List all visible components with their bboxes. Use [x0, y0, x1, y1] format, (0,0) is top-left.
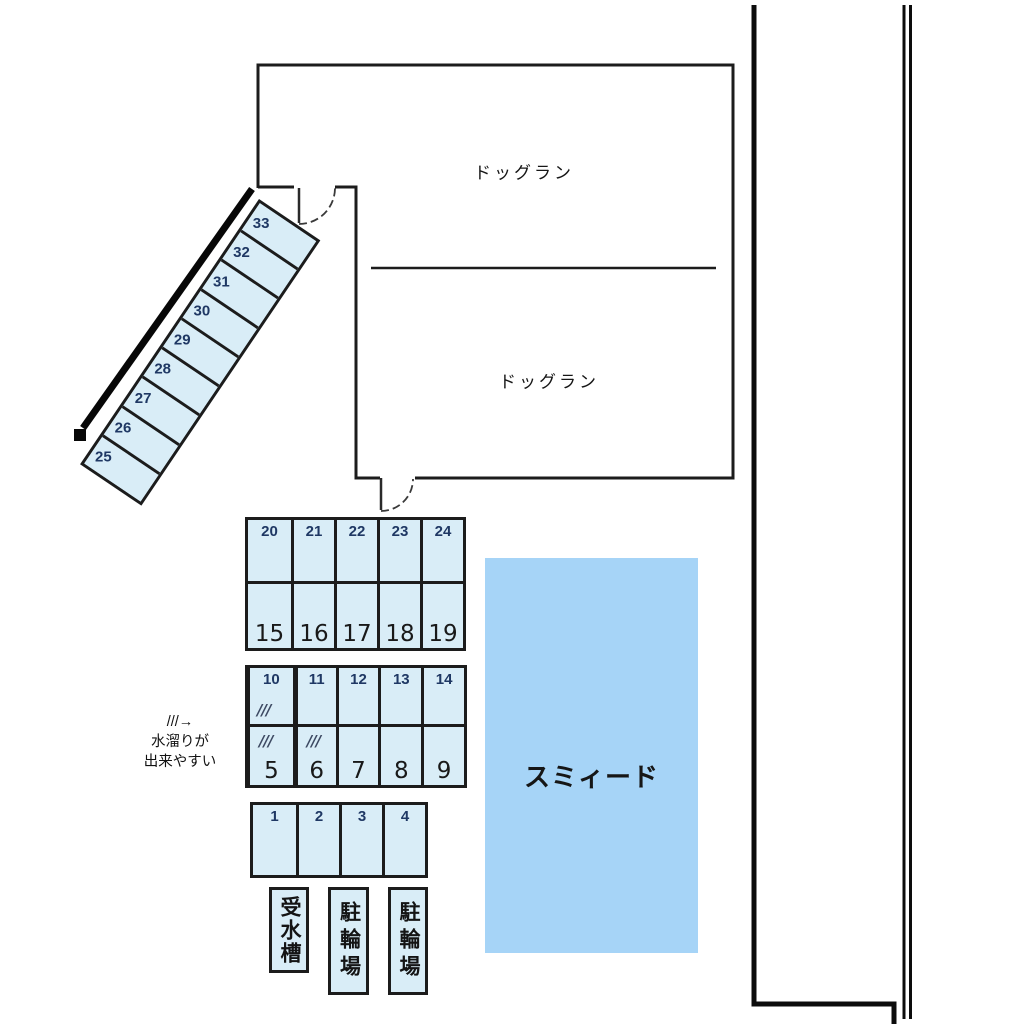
space-number: 20 — [248, 520, 291, 540]
parking-space-21: 21 — [291, 520, 334, 584]
dog-run-lower-label: ドッグラン — [499, 368, 599, 393]
space-number: 29 — [174, 332, 191, 349]
space-number: 7 — [339, 760, 379, 783]
space-number: 10 — [250, 668, 293, 688]
space-number: 30 — [194, 303, 211, 320]
space-number: 9 — [424, 760, 464, 783]
parking-space-10: 10 /// — [250, 668, 293, 727]
space-number: 19 — [423, 623, 463, 646]
bicycle-parking-box-2: 駐輪場 — [388, 887, 428, 995]
road-line-inner — [754, 5, 894, 1024]
space-number: 5 — [250, 760, 293, 783]
space-number: 16 — [294, 623, 334, 646]
parking-space-4: 4 — [382, 805, 425, 875]
parking-space-9: 9 — [421, 727, 464, 786]
space-number: 12 — [339, 668, 379, 688]
parking-space-6: /// 6 — [293, 727, 336, 786]
parking-space-20: 20 — [248, 520, 291, 584]
parking-space-5: /// 5 — [250, 727, 293, 786]
puddle-note-line1: ///→ — [128, 712, 232, 732]
space-number: 28 — [154, 361, 171, 378]
space-number: 15 — [248, 623, 291, 646]
lower-door-swing-arc — [381, 479, 413, 511]
parking-space-13: 13 — [378, 668, 421, 727]
dog-run-outline-left-lower — [335, 187, 380, 478]
space-number: 3 — [342, 805, 382, 825]
parking-space-1: 1 — [253, 805, 296, 875]
fence-end-post — [74, 429, 86, 441]
parking-space-11: 11 — [293, 668, 336, 727]
space-number: 14 — [424, 668, 464, 688]
parking-space-3: 3 — [339, 805, 382, 875]
space-number: 24 — [423, 520, 463, 540]
space-number: 23 — [380, 520, 420, 540]
space-number: 11 — [298, 668, 336, 688]
parking-space-8: 8 — [378, 727, 421, 786]
parking-space-24: 24 — [420, 520, 463, 584]
space-number: 18 — [380, 623, 420, 646]
puddle-hatch: /// — [257, 703, 270, 718]
dog-run-outline — [258, 65, 733, 478]
puddle-note-line3: 出来やすい — [128, 752, 232, 772]
space-number: 22 — [337, 520, 377, 540]
space-number: 17 — [337, 623, 377, 646]
space-number: 4 — [385, 805, 425, 825]
space-number: 1 — [253, 805, 296, 825]
building-label: スミィード — [524, 757, 659, 794]
upper-door-swing-arc — [299, 188, 335, 224]
parking-space-12: 12 — [336, 668, 379, 727]
puddle-hatch: /// — [307, 734, 320, 749]
space-number: 13 — [381, 668, 421, 688]
space-number: 21 — [294, 520, 334, 540]
space-number: 25 — [95, 449, 112, 466]
site-plan: ドッグラン ドッグラン スミィード 33 32 31 30 29 28 27 2… — [0, 0, 1024, 1024]
bicycle-parking-box-1: 駐輪場 — [328, 887, 369, 995]
water-tank-box: 受水槽 — [269, 887, 309, 973]
parking-space-17: 17 — [334, 584, 377, 648]
parking-space-2: 2 — [296, 805, 339, 875]
space-number: 31 — [213, 273, 230, 290]
puddle-note: ///→ 水溜りが 出来やすい — [128, 712, 232, 772]
parking-space-7: 7 — [336, 727, 379, 786]
parking-space-23: 23 — [377, 520, 420, 584]
space-number: 33 — [253, 215, 270, 232]
parking-grid-5-14: 10 /// 11 12 13 14 /// 5 /// 6 7 8 9 — [245, 665, 467, 788]
space-number: 27 — [135, 390, 152, 407]
parking-space-19: 19 — [420, 584, 463, 648]
puddle-hatch: /// — [259, 734, 272, 749]
parking-space-18: 18 — [377, 584, 420, 648]
space-number: 2 — [299, 805, 339, 825]
dog-run-upper-label: ドッグラン — [474, 159, 574, 184]
space-number: 6 — [298, 760, 336, 783]
puddle-note-line2: 水溜りが — [128, 732, 232, 752]
parking-grid-15-24: 20 21 22 23 24 15 16 17 18 19 — [245, 517, 466, 651]
building-sumiido: スミィード — [485, 558, 698, 953]
parking-space-14: 14 — [421, 668, 464, 727]
parking-space-22: 22 — [334, 520, 377, 584]
parking-grid-1-4: 1 2 3 4 — [250, 802, 428, 878]
space-number: 32 — [233, 244, 250, 261]
space-number: 26 — [115, 419, 132, 436]
space-number: 8 — [381, 760, 421, 783]
parking-space-15: 15 — [248, 584, 291, 648]
parking-space-16: 16 — [291, 584, 334, 648]
